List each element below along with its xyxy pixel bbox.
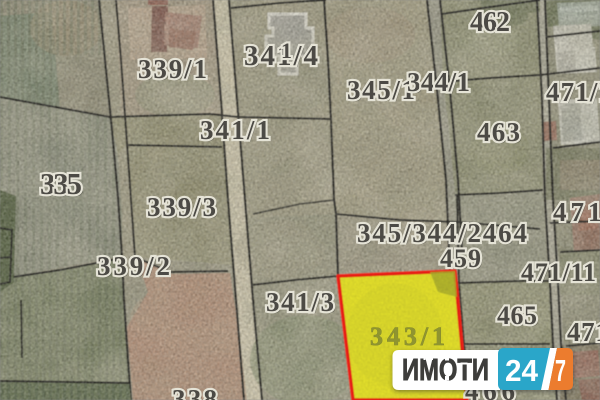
svg-text:462: 462 <box>470 7 510 38</box>
svg-text:471/: 471/ <box>567 317 600 347</box>
svg-text:335: 335 <box>40 166 82 201</box>
svg-text:471/: 471/ <box>553 197 600 227</box>
svg-text:341/3: 341/3 <box>266 287 334 317</box>
svg-text:24: 24 <box>505 353 539 388</box>
svg-text:463: 463 <box>477 117 520 147</box>
svg-text:471/1: 471/1 <box>546 77 600 107</box>
svg-text:471/11: 471/11 <box>521 258 596 287</box>
svg-text:339/2: 339/2 <box>97 251 170 281</box>
svg-text:339/1: 339/1 <box>138 54 207 84</box>
svg-text:1: 1 <box>281 38 292 63</box>
svg-text:341/1: 341/1 <box>200 115 270 145</box>
svg-text:459: 459 <box>440 244 481 273</box>
svg-text:345/1: 345/1 <box>347 75 415 105</box>
svg-text:339/3: 339/3 <box>147 192 216 222</box>
svg-text:338: 338 <box>172 384 217 400</box>
svg-text:465: 465 <box>497 301 537 330</box>
svg-text:7: 7 <box>555 353 566 388</box>
svg-text:344/1: 344/1 <box>407 67 470 97</box>
svg-text:343/1: 343/1 <box>370 322 445 351</box>
